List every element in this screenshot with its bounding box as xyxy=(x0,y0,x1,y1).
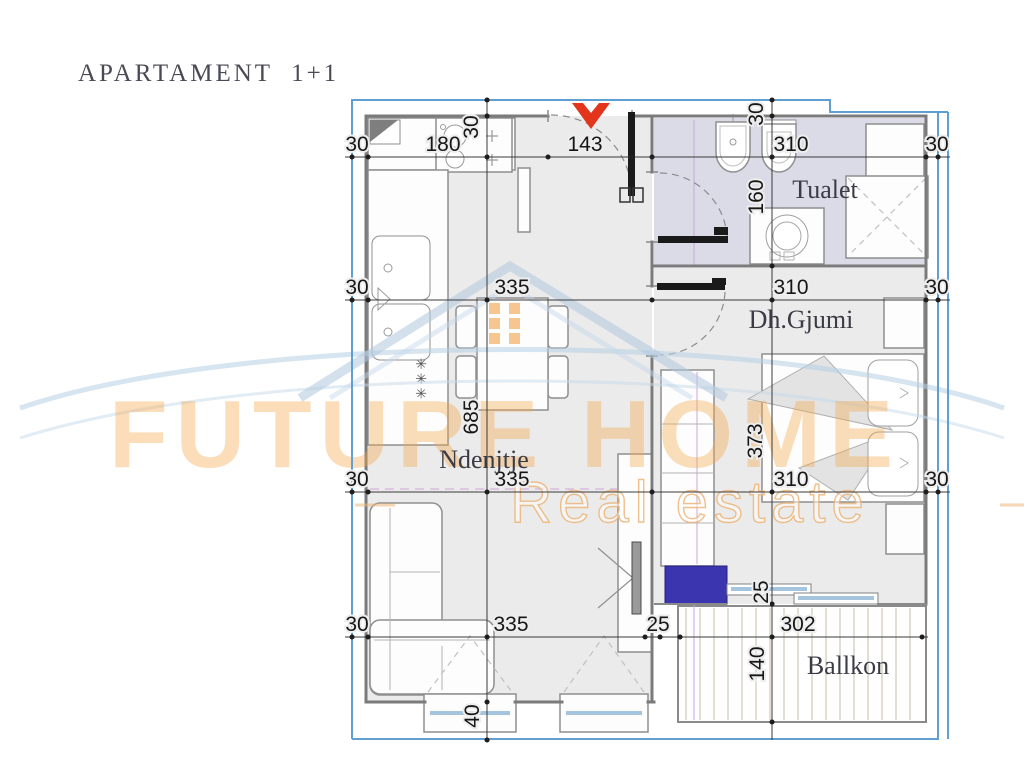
room-label-living: Ndenjtje xyxy=(439,445,529,474)
dim-label: 180 xyxy=(425,133,460,156)
dim-label: 30 xyxy=(925,468,948,491)
dim-label: 335 xyxy=(493,613,528,636)
nightstand xyxy=(886,504,924,554)
dim-label: 160 xyxy=(745,179,768,214)
door-hinge xyxy=(714,227,728,235)
dim-label: 30 xyxy=(345,468,368,491)
floor-plan-drawing: ✳✳✳ xyxy=(0,0,1024,768)
dim-label: 25 xyxy=(750,580,773,603)
watermark-tagline: Real estate xyxy=(510,470,869,535)
entry-partition xyxy=(518,168,530,232)
nightstand xyxy=(884,298,924,348)
dim-label: 30 xyxy=(925,276,948,299)
dim-label: 30 xyxy=(345,276,368,299)
dim-label: 685 xyxy=(460,399,483,434)
stove-knob xyxy=(441,125,446,130)
door-hinge xyxy=(712,278,726,285)
dim-label: 30 xyxy=(745,102,768,125)
dim-label: 25 xyxy=(646,613,669,636)
sofa-chaise xyxy=(370,620,494,694)
dim-label: 310 xyxy=(773,133,808,156)
dim-label: 302 xyxy=(780,613,815,636)
door-panel xyxy=(658,236,728,243)
dim-label: 310 xyxy=(773,276,808,299)
dim-label: 143 xyxy=(567,133,602,156)
shower-tray xyxy=(846,176,928,258)
washing-machine xyxy=(750,208,824,264)
dim-label: 30 xyxy=(345,133,368,156)
dim-label: 30 xyxy=(345,613,368,636)
room-label-toilet: Tualet xyxy=(792,175,858,204)
dim-label: 40 xyxy=(461,704,484,727)
dim-label: 140 xyxy=(746,646,769,681)
dim-label: 335 xyxy=(494,276,529,299)
tv-screen xyxy=(632,542,641,614)
room-label-balcony: Ballkon xyxy=(807,651,889,680)
door-panel xyxy=(628,112,635,196)
bathroom-cabinet xyxy=(866,124,924,178)
dim-label: 30 xyxy=(460,115,483,138)
dresser-navy xyxy=(665,566,727,604)
dim-label: 30 xyxy=(925,133,948,156)
room-label-bedroom: Dh.Gjumi xyxy=(749,305,854,334)
dim-label: 373 xyxy=(744,423,767,458)
dim-label: 310 xyxy=(773,468,808,491)
floor-plan-page: APARTAMENT 1+1 xyxy=(0,0,1024,768)
